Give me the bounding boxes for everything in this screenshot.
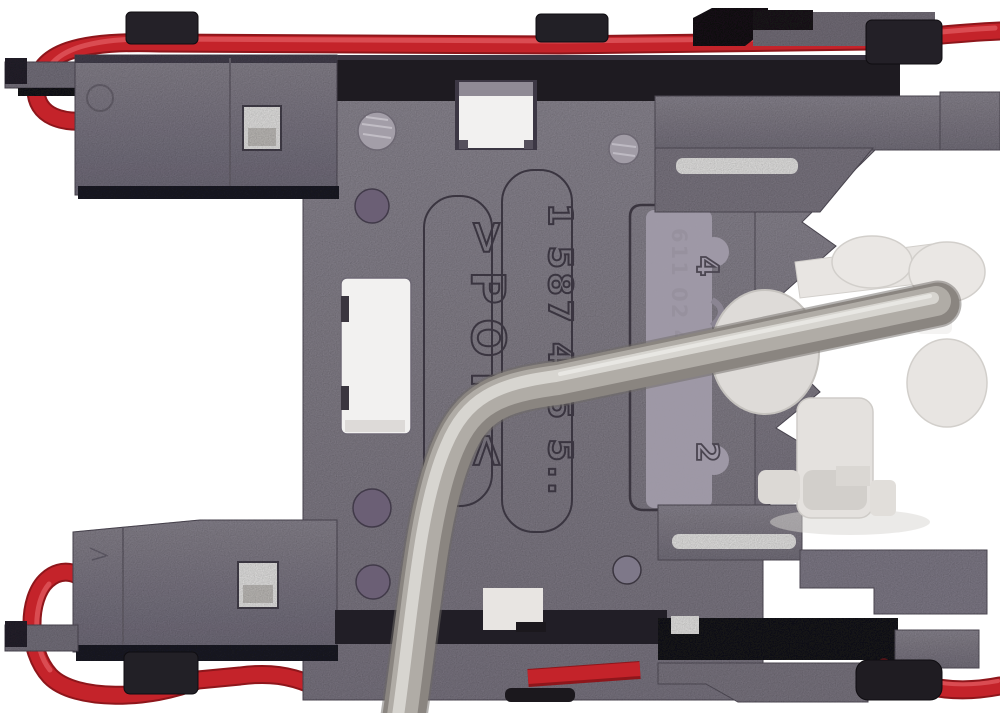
hole-top: [355, 189, 389, 223]
wire-clip-bottom-left: [124, 652, 198, 694]
window-left: [341, 278, 411, 434]
wire-clip-top-right: [866, 20, 942, 64]
window-top-lintel: [459, 82, 533, 98]
hole-bottom-2: [356, 565, 390, 599]
wire-clip-top-center: [536, 14, 608, 42]
wire-clip-top-left: [126, 12, 198, 44]
housing-block-bottom: [73, 520, 337, 652]
window-top: [459, 96, 533, 148]
screw-boss-right: [609, 134, 639, 164]
component-photo: >POM< 1 587 415 5.. 611 02 4 4 2: [0, 0, 1000, 713]
rail-slab-bottom: [658, 505, 802, 560]
white-clip-lobe-lower: [907, 339, 987, 427]
housing-bottom-black-strip: [76, 645, 338, 661]
hole-outline: [613, 556, 641, 584]
white-notch-bottom: [671, 616, 699, 634]
slider-number-4: 4: [689, 256, 724, 277]
housing-top-black-strip: [78, 186, 339, 199]
wire-clip-bottom-right: [856, 660, 942, 700]
slider-number-2: 2: [689, 442, 724, 463]
black-nub-bottom: [505, 688, 575, 702]
photo-stage: >POM< 1 587 415 5.. 611 02 4 4 2: [0, 0, 1000, 713]
hole-bottom-1: [353, 489, 391, 527]
white-clip-lobe-1: [832, 236, 912, 288]
part-number: 1 587 415 5..: [541, 203, 580, 498]
top-black-bar: [303, 55, 900, 101]
rail-slot-bottom: [672, 534, 796, 549]
rail-slot-top: [676, 158, 798, 174]
housing-block-top: [75, 55, 337, 195]
